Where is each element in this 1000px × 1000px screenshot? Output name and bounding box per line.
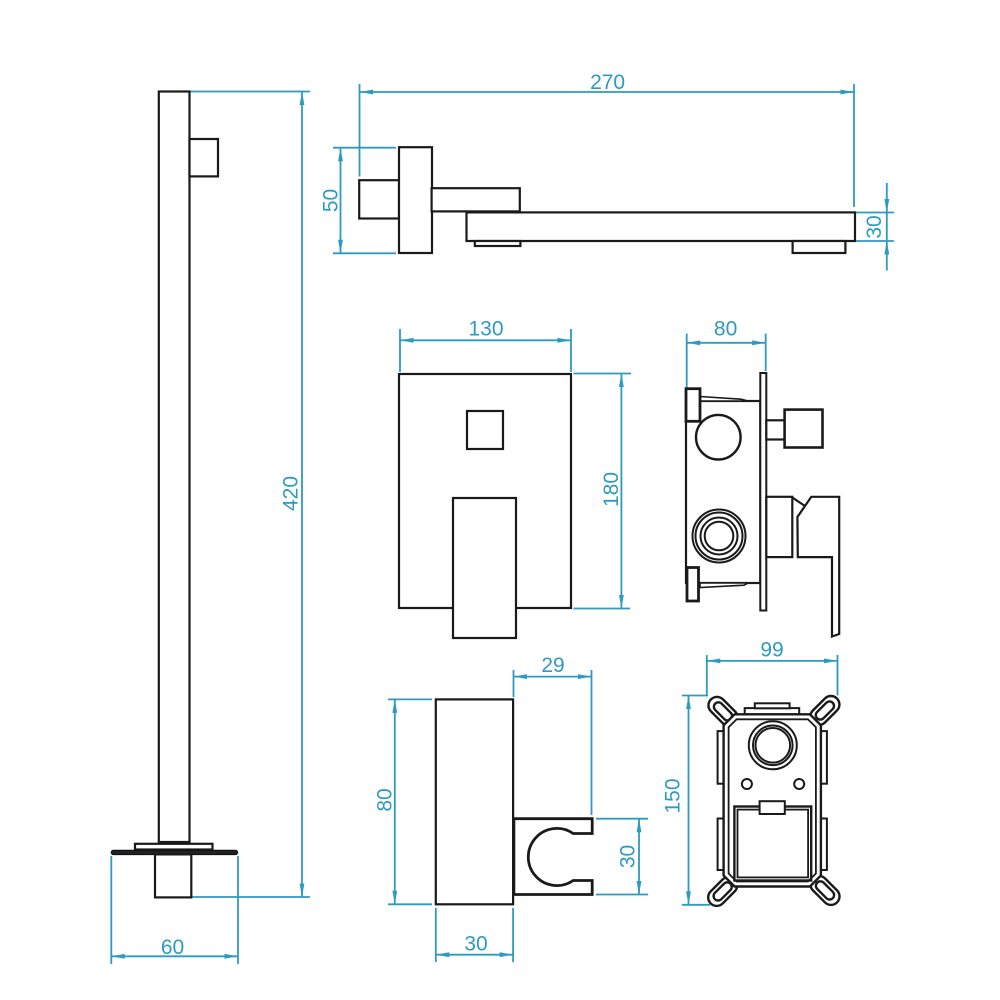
svg-text:270: 270 bbox=[590, 71, 625, 94]
svg-text:420: 420 bbox=[280, 476, 303, 511]
svg-text:30: 30 bbox=[464, 933, 487, 956]
svg-text:50: 50 bbox=[320, 189, 343, 212]
svg-text:150: 150 bbox=[662, 778, 685, 813]
svg-text:99: 99 bbox=[760, 639, 783, 662]
svg-text:180: 180 bbox=[600, 472, 623, 507]
svg-text:30: 30 bbox=[863, 215, 886, 238]
svg-text:60: 60 bbox=[161, 936, 184, 959]
svg-text:30: 30 bbox=[617, 845, 640, 868]
svg-text:130: 130 bbox=[468, 318, 503, 341]
svg-text:29: 29 bbox=[541, 654, 564, 677]
svg-text:80: 80 bbox=[374, 788, 397, 811]
svg-text:80: 80 bbox=[714, 318, 737, 341]
